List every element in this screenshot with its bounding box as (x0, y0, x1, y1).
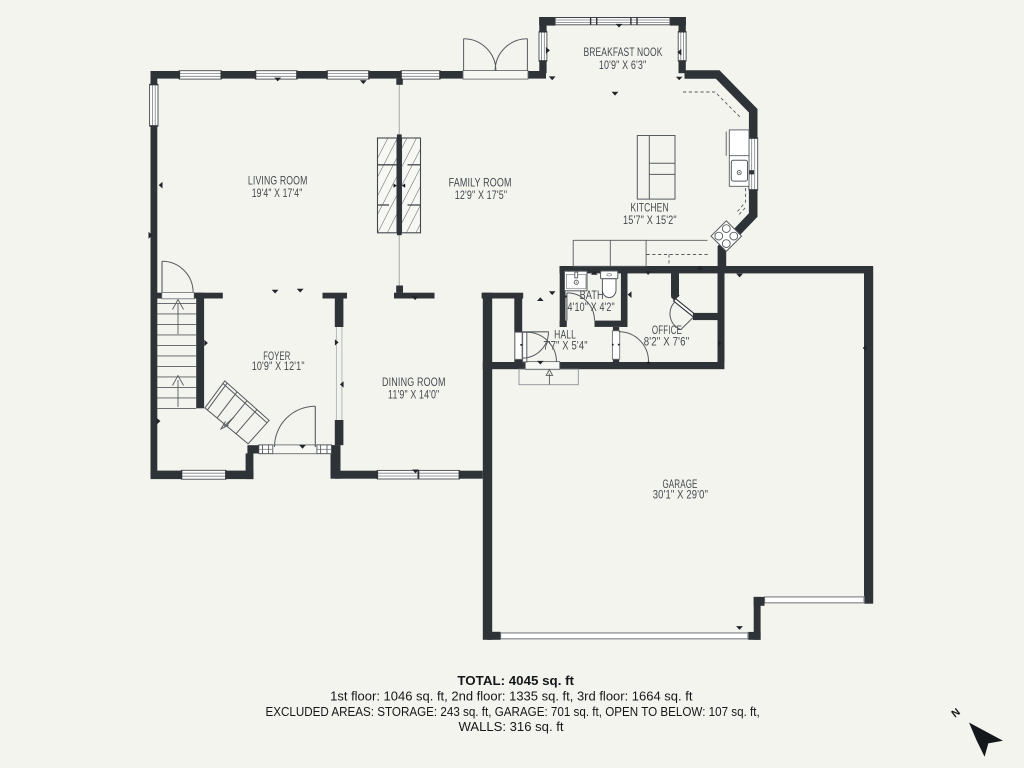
svg-text:30'1" X 29'0": 30'1" X 29'0" (653, 488, 708, 502)
svg-text:11'9" X 14'0": 11'9" X 14'0" (388, 388, 439, 402)
svg-text:8'2" X 7'6": 8'2" X 7'6" (644, 335, 690, 349)
svg-text:7'7" X 5'4": 7'7" X 5'4" (543, 339, 588, 353)
svg-text:TOTAL: 4045 sq. ft: TOTAL: 4045 sq. ft (457, 674, 574, 688)
svg-text:1st floor: 1046 sq. ft, 2nd fl: 1st floor: 1046 sq. ft, 2nd floor: 1335 … (330, 690, 693, 704)
svg-text:10'9" X 6'3": 10'9" X 6'3" (599, 58, 647, 72)
svg-text:WALLS: 316 sq. ft: WALLS: 316 sq. ft (459, 720, 565, 734)
svg-text:19'4" X 17'4": 19'4" X 17'4" (252, 186, 303, 200)
svg-text:12'9" X 17'5": 12'9" X 17'5" (455, 188, 507, 202)
svg-text:15'7" X 15'2": 15'7" X 15'2" (623, 213, 677, 227)
svg-text:10'9" X 12'1": 10'9" X 12'1" (252, 359, 305, 373)
svg-text:EXCLUDED AREAS: STORAGE: 243 s: EXCLUDED AREAS: STORAGE: 243 sq. ft, GAR… (265, 705, 759, 719)
svg-text:4'10" X 4'2": 4'10" X 4'2" (568, 300, 615, 314)
